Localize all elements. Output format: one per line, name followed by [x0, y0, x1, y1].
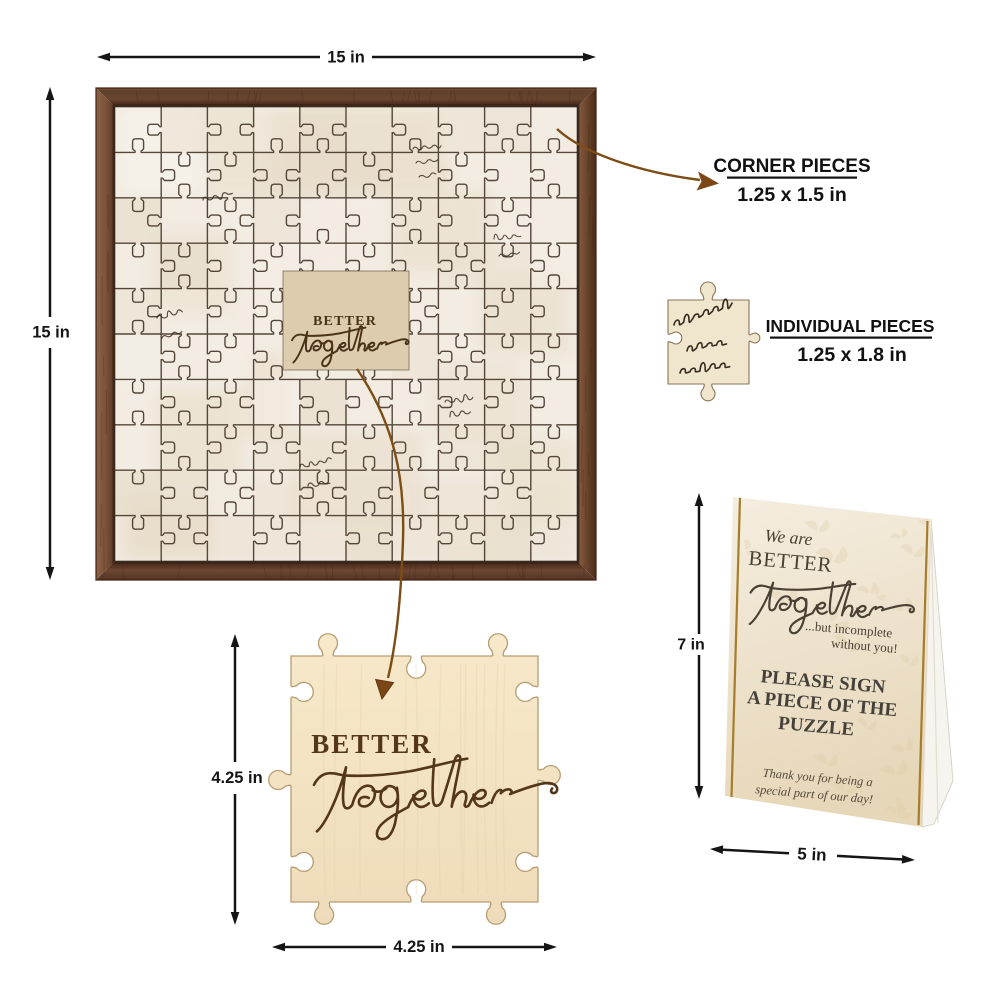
svg-text:1.25 x 1.8 in: 1.25 x 1.8 in: [797, 344, 907, 366]
svg-text:CORNER PIECES: CORNER PIECES: [713, 156, 870, 177]
svg-text:15 in: 15 in: [327, 49, 365, 67]
svg-text:15 in: 15 in: [32, 324, 70, 342]
svg-text:1.25 x 1.5 in: 1.25 x 1.5 in: [737, 184, 847, 206]
svg-text:INDIVIDUAL PIECES: INDIVIDUAL PIECES: [766, 316, 935, 336]
svg-text:7 in: 7 in: [677, 637, 705, 654]
svg-text:BETTER: BETTER: [313, 314, 377, 329]
svg-text:4.25 in: 4.25 in: [393, 938, 444, 956]
svg-text:4.25 in: 4.25 in: [211, 769, 262, 787]
svg-text:We are: We are: [764, 525, 814, 549]
svg-text:BETTER: BETTER: [311, 729, 433, 759]
svg-text:5 in: 5 in: [797, 844, 827, 865]
